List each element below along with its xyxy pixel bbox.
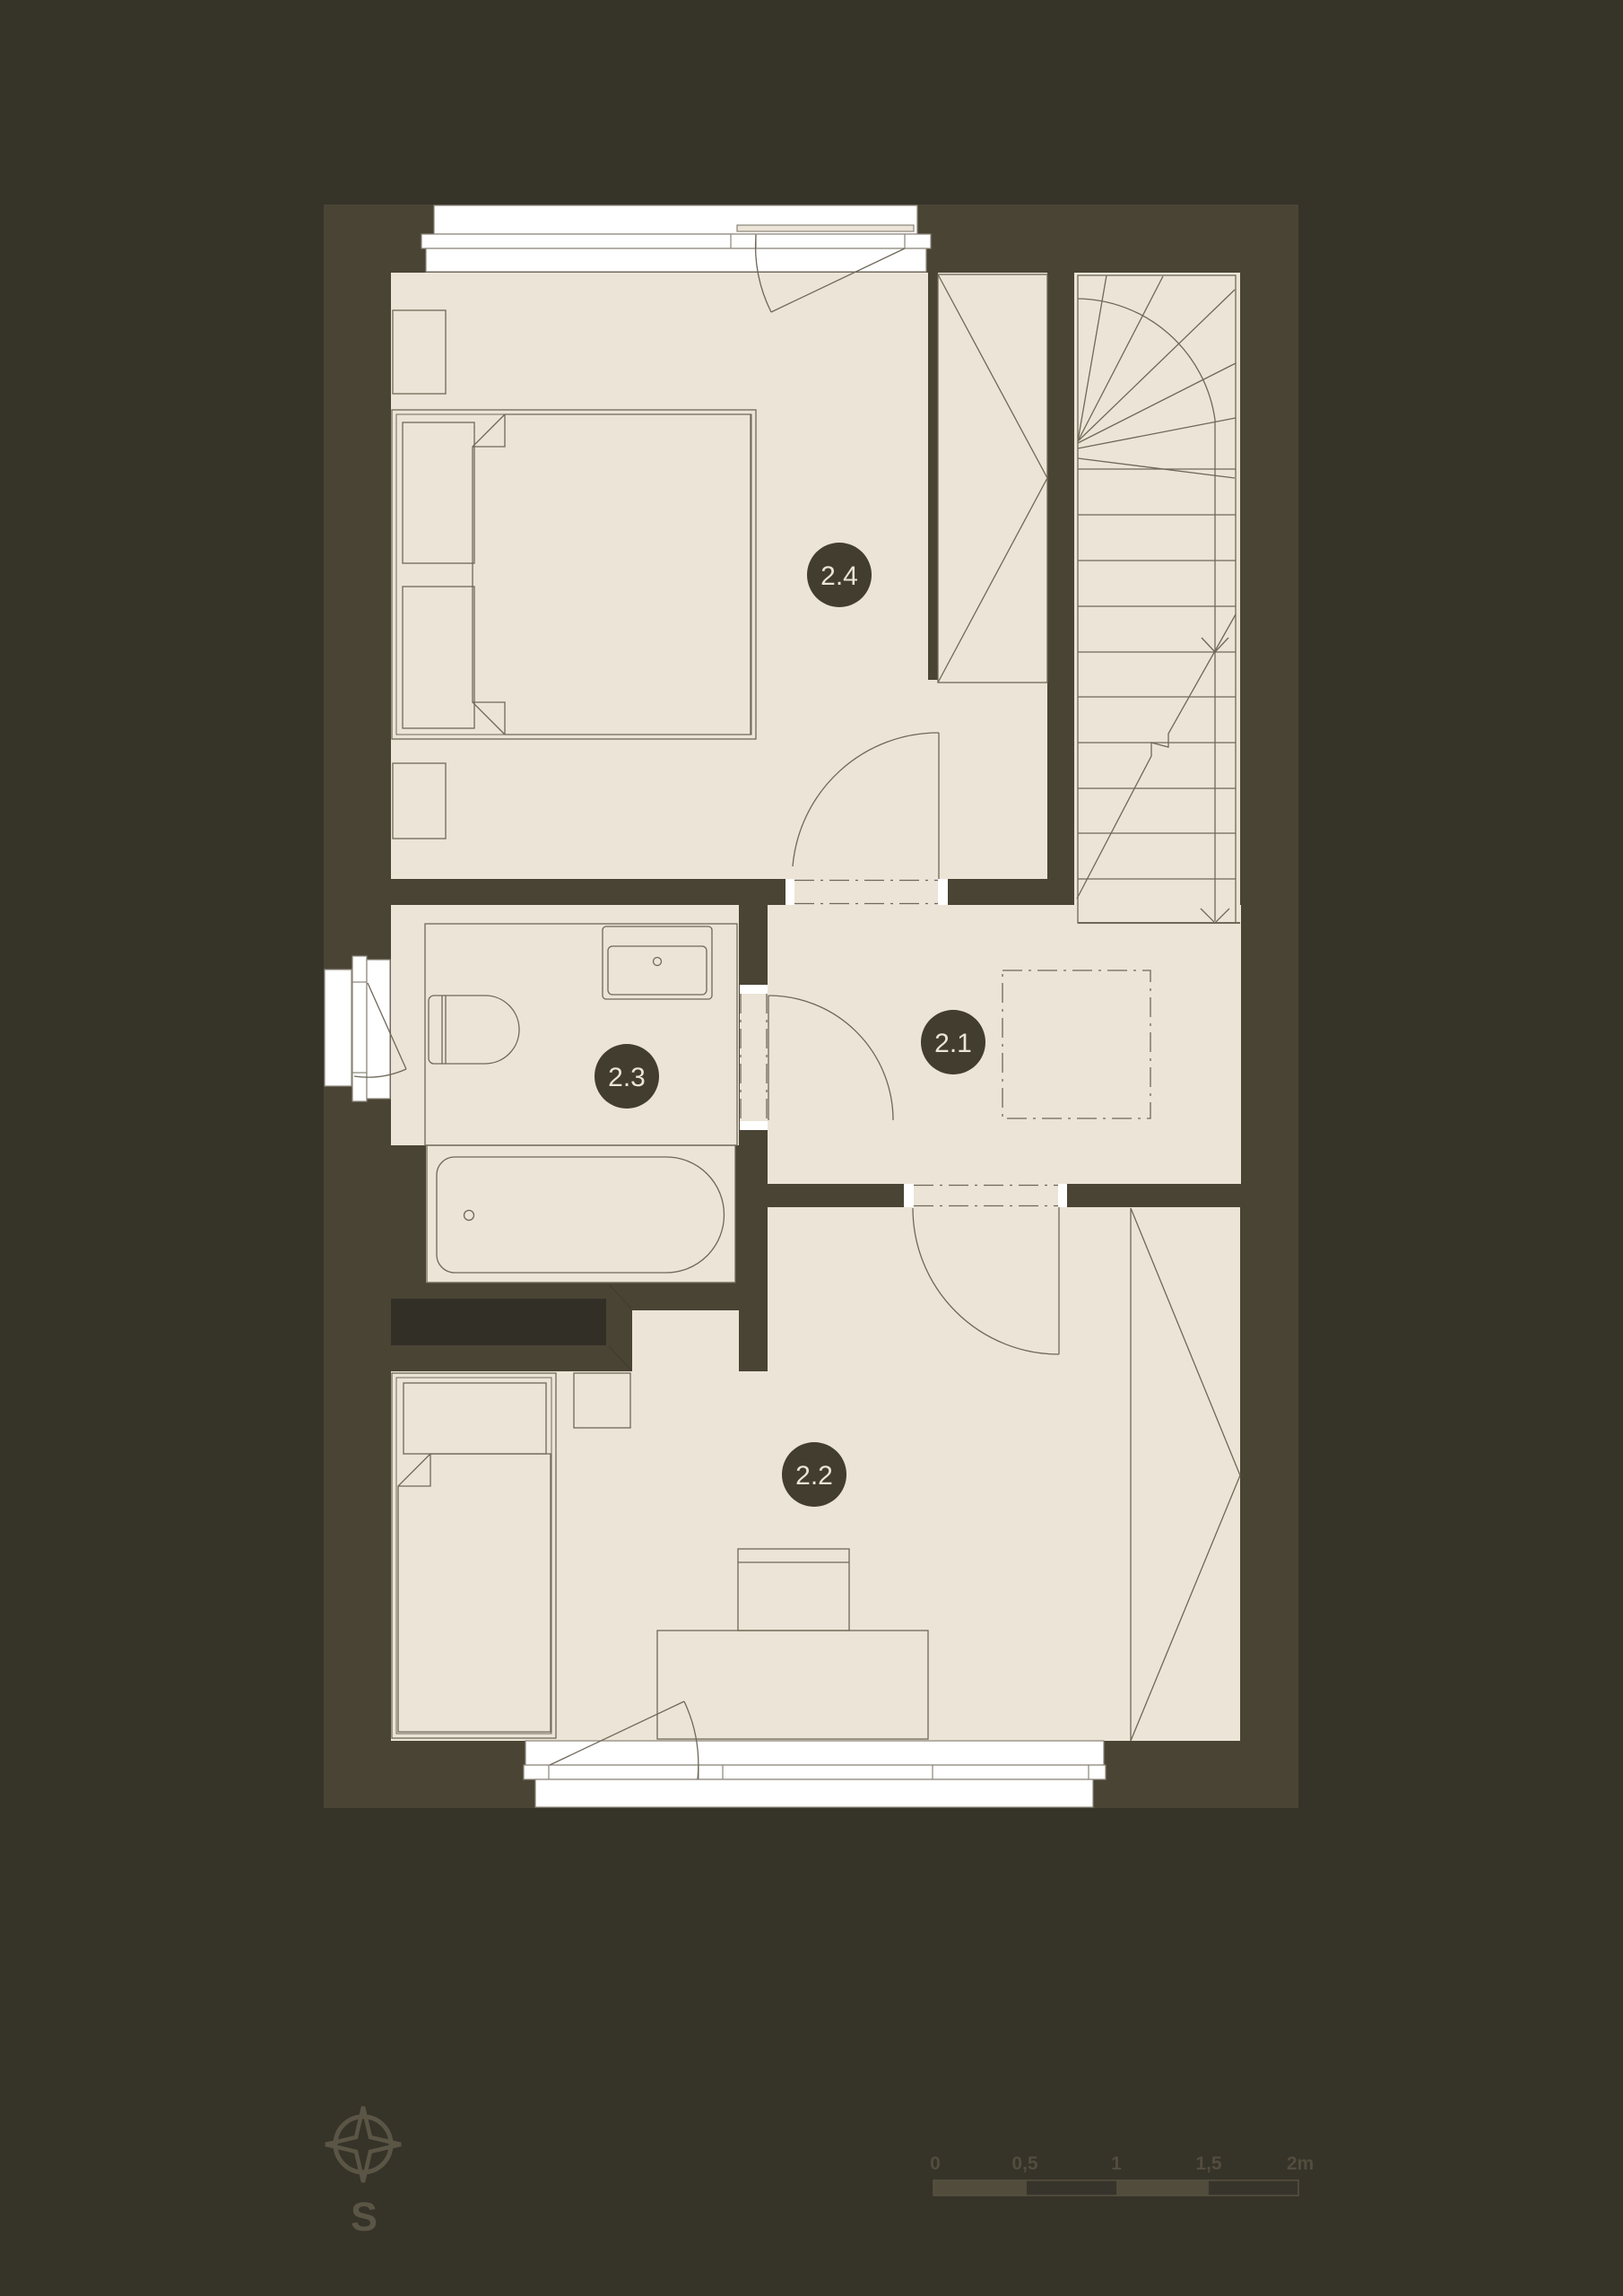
svg-text:2.2: 2.2 [795,1461,833,1491]
svg-text:2.3: 2.3 [608,1063,646,1092]
svg-text:1,5: 1,5 [1195,2153,1222,2174]
svg-text:2m: 2m [1287,2153,1314,2174]
svg-text:S: S [351,2194,378,2239]
svg-text:0: 0 [930,2153,941,2174]
svg-text:1: 1 [1111,2153,1122,2174]
svg-text:2.1: 2.1 [934,1029,972,1058]
svg-text:0,5: 0,5 [1011,2153,1038,2174]
svg-text:2.4: 2.4 [820,561,858,591]
